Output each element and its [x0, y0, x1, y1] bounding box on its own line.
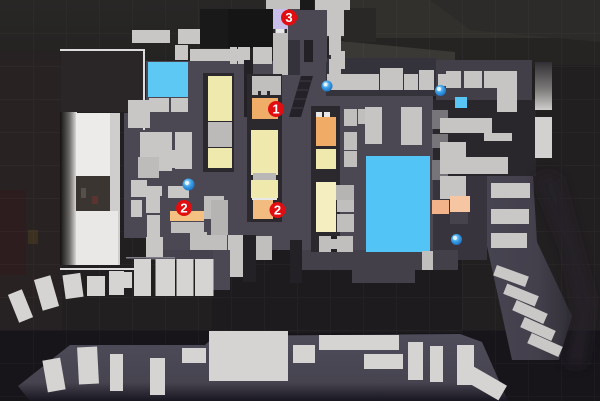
svg-text:1: 1: [272, 102, 279, 117]
svg-text:2: 2: [274, 203, 281, 218]
svg-text:3: 3: [285, 10, 292, 25]
svg-text:2: 2: [180, 201, 187, 216]
